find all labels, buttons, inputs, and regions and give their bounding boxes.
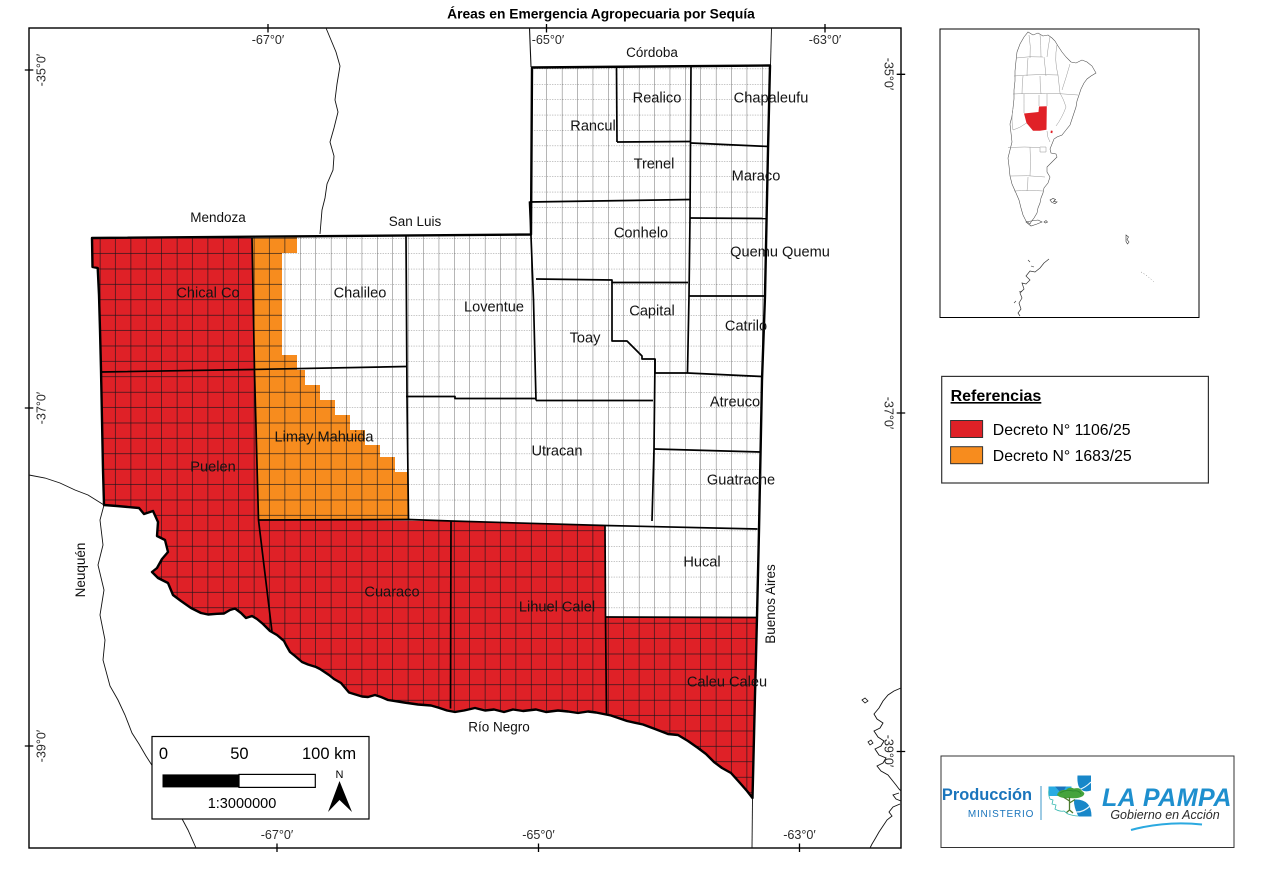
svg-text:100 km: 100 km	[302, 745, 356, 763]
svg-text:Catrilo: Catrilo	[725, 319, 767, 335]
svg-text:Decreto N° 1683/25: Decreto N° 1683/25	[993, 448, 1132, 465]
svg-text:Áreas en Emergencia Agropecuar: Áreas en Emergencia Agropecuaria por Seq…	[447, 6, 755, 22]
svg-text:Chalileo: Chalileo	[334, 286, 387, 302]
svg-text:-37°0′: -37°0′	[34, 391, 48, 424]
svg-text:Córdoba: Córdoba	[626, 45, 678, 60]
svg-text:Referencias: Referencias	[951, 388, 1042, 405]
svg-text:1:3000000: 1:3000000	[208, 796, 277, 812]
svg-text:Cuaraco: Cuaraco	[364, 585, 419, 601]
svg-text:Buenos Aires: Buenos Aires	[763, 564, 778, 644]
svg-text:Guatrache: Guatrache	[707, 473, 775, 489]
svg-text:Gobierno en Acción: Gobierno en Acción	[1110, 808, 1219, 822]
svg-text:Caleu Caleu: Caleu Caleu	[687, 675, 767, 691]
svg-text:Río Negro: Río Negro	[468, 720, 530, 735]
svg-text:San Luis: San Luis	[389, 214, 442, 229]
svg-text:MINISTERIO: MINISTERIO	[968, 809, 1034, 820]
svg-text:Hucal: Hucal	[683, 555, 720, 571]
svg-text:Decreto N° 1106/25: Decreto N° 1106/25	[993, 422, 1131, 439]
svg-text:Conhelo: Conhelo	[614, 226, 668, 242]
svg-text:Utracan: Utracan	[531, 444, 582, 460]
svg-text:-39°0′: -39°0′	[882, 735, 896, 768]
svg-text:-65°0′: -65°0′	[522, 828, 555, 842]
svg-text:Producción: Producción	[942, 786, 1032, 804]
svg-text:Maraco: Maraco	[732, 169, 781, 185]
svg-text:N: N	[336, 769, 344, 781]
svg-text:Lihuel Calel: Lihuel Calel	[519, 600, 595, 616]
svg-text:-67°0′: -67°0′	[261, 828, 294, 842]
svg-text:-63°0′: -63°0′	[809, 33, 842, 47]
svg-text:Trenel: Trenel	[634, 157, 675, 173]
svg-text:-65°0′: -65°0′	[532, 33, 565, 47]
svg-text:Limay Mahuida: Limay Mahuida	[275, 430, 375, 446]
svg-text:Atreuco: Atreuco	[710, 395, 760, 411]
svg-text:Quemu Quemu: Quemu Quemu	[730, 245, 830, 261]
svg-text:-39°0′: -39°0′	[34, 729, 48, 762]
svg-text:-63°0′: -63°0′	[783, 828, 816, 842]
svg-text:-67°0′: -67°0′	[252, 33, 285, 47]
svg-text:Neuquén: Neuquén	[73, 543, 88, 598]
svg-text:Puelen: Puelen	[190, 460, 235, 476]
svg-text:50: 50	[230, 745, 248, 763]
svg-text:0: 0	[159, 745, 168, 763]
svg-text:Rancul: Rancul	[570, 119, 615, 135]
svg-text:Chapaleufu: Chapaleufu	[734, 91, 809, 107]
svg-text:Chical Co: Chical Co	[176, 286, 239, 302]
svg-text:Realico: Realico	[633, 91, 682, 107]
svg-text:Loventue: Loventue	[464, 300, 524, 316]
svg-text:-37°0′: -37°0′	[882, 397, 896, 430]
svg-text:Capital: Capital	[629, 304, 674, 320]
svg-text:-35°0′: -35°0′	[34, 53, 48, 86]
svg-text:Toay: Toay	[570, 331, 602, 347]
svg-text:-35°0′: -35°0′	[882, 58, 896, 91]
svg-text:Mendoza: Mendoza	[190, 210, 246, 225]
